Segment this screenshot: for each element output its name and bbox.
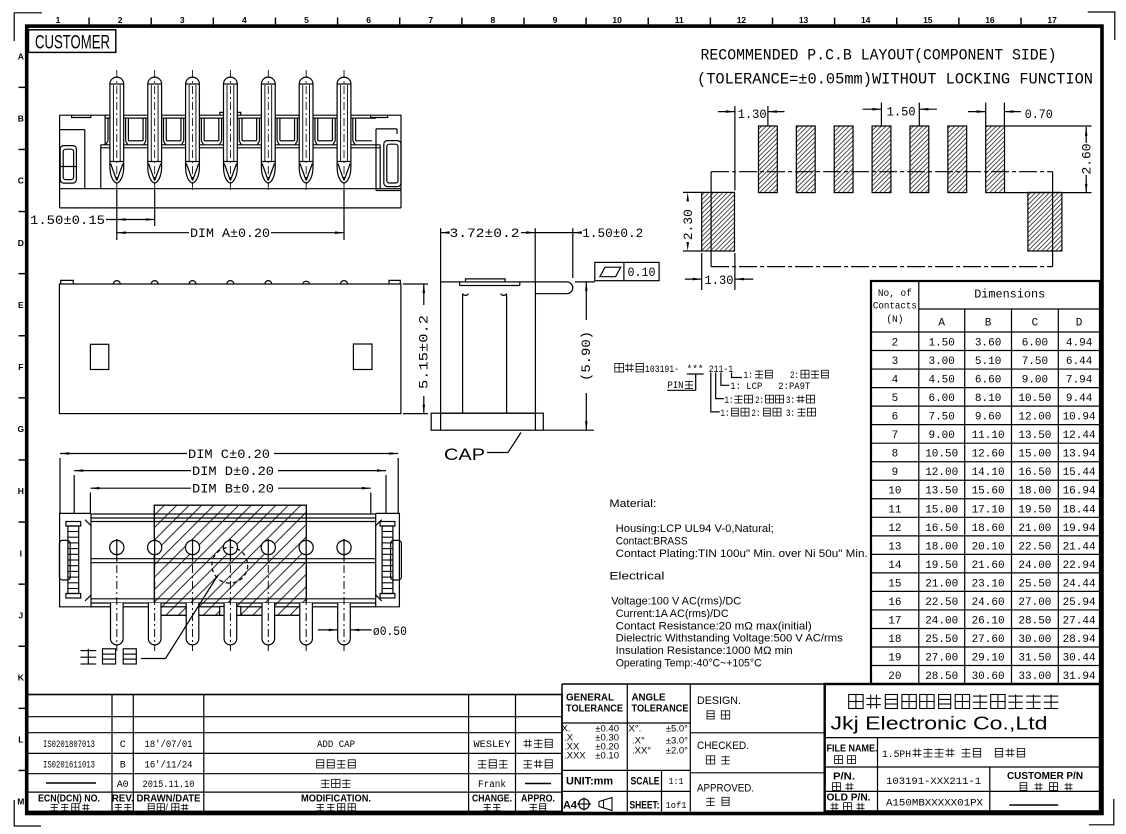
svg-text:2:: 2:	[752, 409, 761, 420]
svg-text:7.50: 7.50	[1022, 356, 1048, 368]
svg-text:25.50: 25.50	[925, 634, 958, 646]
svg-text:RECOMMENDED P.C.B LAYOUT(COMPO: RECOMMENDED P.C.B LAYOUT(COMPONENT SIDE)	[701, 47, 1057, 65]
svg-text:P/N.: P/N.	[833, 772, 855, 783]
svg-text:CUSTOMER P/N: CUSTOMER P/N	[1007, 771, 1083, 782]
svg-text:2:: 2:	[755, 396, 764, 407]
svg-text:IS0201807013: IS0201807013	[43, 740, 95, 751]
svg-text:3.00: 3.00	[928, 356, 954, 368]
svg-text:A4: A4	[563, 800, 578, 812]
svg-text:Contact Plating:TIN 100u" Min.: Contact Plating:TIN 100u" Min. over Ni 5…	[616, 548, 868, 560]
svg-text:3.60: 3.60	[975, 338, 1001, 350]
svg-text:ANGLE: ANGLE	[632, 693, 666, 704]
svg-text:Insulation Resistance:1000 MΩ: Insulation Resistance:1000 MΩ min	[616, 645, 793, 657]
svg-text:28.50: 28.50	[925, 671, 958, 683]
svg-text:13.50: 13.50	[1018, 430, 1051, 442]
svg-text:1: LCP 2:PA9T: 1: LCP 2:PA9T	[730, 382, 810, 393]
svg-text:103191-XXX211-1: 103191-XXX211-1	[886, 776, 981, 788]
svg-text:DIM A±0.20: DIM A±0.20	[190, 226, 270, 241]
svg-text:CUSTOMER: CUSTOMER	[35, 33, 110, 54]
svg-text:25.94: 25.94	[1063, 597, 1096, 609]
svg-text:7: 7	[892, 430, 899, 442]
svg-text:27.60: 27.60	[972, 634, 1005, 646]
svg-text:1.5PH: 1.5PH	[882, 749, 911, 761]
svg-text:I: I	[20, 548, 22, 558]
svg-text:1:: 1:	[721, 409, 730, 420]
svg-text:4: 4	[242, 15, 247, 25]
svg-text:±0.10: ±0.10	[595, 751, 619, 762]
svg-text:J: J	[18, 610, 23, 620]
svg-text:1.50: 1.50	[928, 338, 954, 350]
svg-text:30.00: 30.00	[1018, 634, 1051, 646]
svg-text:9.00: 9.00	[1022, 375, 1048, 387]
svg-text:24.44: 24.44	[1063, 578, 1096, 590]
svg-text:2.30: 2.30	[681, 209, 696, 240]
svg-text:3:: 3:	[786, 396, 795, 407]
svg-text:MODIFICATION.: MODIFICATION.	[301, 794, 371, 805]
svg-text:4.94: 4.94	[1066, 338, 1093, 350]
svg-text:4: 4	[892, 375, 899, 387]
svg-text:12.44: 12.44	[1063, 430, 1096, 442]
svg-text:APPRO.: APPRO.	[521, 794, 555, 805]
svg-text:Electrical: Electrical	[609, 571, 664, 583]
svg-text:18.00: 18.00	[1018, 486, 1051, 498]
svg-text:6.60: 6.60	[975, 375, 1001, 387]
svg-text:5.10: 5.10	[975, 356, 1001, 368]
svg-text:28.94: 28.94	[1063, 634, 1096, 646]
svg-text:FILE NAME.: FILE NAME.	[827, 744, 878, 755]
svg-text:12.60: 12.60	[972, 449, 1005, 461]
svg-text:Jkj Electronic Co.,Ltd: Jkj Electronic Co.,Ltd	[831, 714, 1048, 734]
svg-text:(N): (N)	[886, 314, 903, 326]
svg-text:ø0.50: ø0.50	[373, 624, 407, 639]
svg-text:G: G	[17, 424, 24, 434]
svg-text:DRAWN/DATE: DRAWN/DATE	[137, 794, 201, 805]
svg-text:12: 12	[888, 523, 901, 535]
svg-text:12: 12	[737, 15, 747, 25]
svg-text:M: M	[17, 797, 24, 807]
svg-text:19.94: 19.94	[1063, 523, 1096, 535]
svg-text:CAP: CAP	[444, 445, 485, 464]
svg-text:(TOLERANCE=±0.05mm)WITHOUT LOC: (TOLERANCE=±0.05mm)WITHOUT LOCKING FUNCT…	[697, 71, 1093, 89]
svg-text:Operating Temp:-40°C~+105°C: Operating Temp:-40°C~+105°C	[616, 658, 762, 670]
svg-text:12.00: 12.00	[925, 467, 958, 479]
svg-text:TOLERANCE: TOLERANCE	[632, 704, 689, 715]
svg-text:13.94: 13.94	[1063, 449, 1096, 461]
svg-text:9: 9	[553, 15, 558, 25]
svg-text:H: H	[18, 486, 24, 496]
svg-text:C: C	[18, 176, 24, 186]
svg-text:23.10: 23.10	[972, 578, 1005, 590]
svg-text:18.44: 18.44	[1063, 504, 1096, 516]
svg-text:ADD CAP: ADD CAP	[317, 740, 355, 751]
svg-text:5.15±0.2: 5.15±0.2	[417, 315, 432, 389]
svg-text:10: 10	[888, 486, 901, 498]
svg-text:28.50: 28.50	[1018, 615, 1051, 627]
svg-text:0.70: 0.70	[1025, 107, 1053, 122]
svg-text:2015.11.10: 2015.11.10	[143, 780, 195, 791]
svg-text:Contact Resistance:20 mΩ max(i: Contact Resistance:20 mΩ max(initial)	[616, 620, 812, 632]
svg-text:17.10: 17.10	[972, 504, 1005, 516]
svg-text:12.00: 12.00	[1018, 412, 1051, 424]
svg-text:15.44: 15.44	[1063, 467, 1096, 479]
svg-text:10.50: 10.50	[1018, 393, 1051, 405]
svg-text:18.60: 18.60	[972, 523, 1005, 535]
svg-text:1.30: 1.30	[705, 273, 734, 288]
svg-text:A: A	[18, 52, 24, 62]
svg-text:25.50: 25.50	[1018, 578, 1051, 590]
svg-text:D: D	[18, 238, 24, 248]
svg-text:CHANGE.: CHANGE.	[472, 794, 512, 805]
svg-text:6.00: 6.00	[928, 393, 954, 405]
svg-text:24.00: 24.00	[925, 615, 958, 627]
svg-text:Housing:LCP UL94 V-0,Natural;: Housing:LCP UL94 V-0,Natural;	[616, 523, 774, 535]
svg-text:14.10: 14.10	[972, 467, 1005, 479]
svg-text:Dielectric Withstanding Voltag: Dielectric Withstanding Voltage:500 V AC…	[616, 633, 844, 645]
svg-text:10: 10	[612, 15, 622, 25]
svg-text:SCALE: SCALE	[631, 776, 660, 788]
svg-text:18'/07/01: 18'/07/01	[145, 739, 193, 751]
svg-text:Contacts: Contacts	[873, 302, 917, 313]
svg-text:C: C	[120, 740, 126, 751]
svg-text:10.94: 10.94	[1063, 412, 1096, 424]
svg-text:F: F	[18, 362, 23, 372]
svg-text:A150MBXXXXX01PX: A150MBXXXXX01PX	[886, 798, 984, 810]
svg-text:9.44: 9.44	[1066, 393, 1093, 405]
svg-text:3: 3	[180, 15, 185, 25]
svg-text:5: 5	[892, 393, 899, 405]
svg-text:1:: 1:	[744, 371, 753, 382]
svg-text:13: 13	[888, 541, 901, 553]
svg-text:7.50: 7.50	[928, 412, 954, 424]
svg-text:15.00: 15.00	[925, 504, 958, 516]
svg-text:20.10: 20.10	[972, 541, 1005, 553]
svg-text:13.50: 13.50	[925, 486, 958, 498]
svg-text:1of1: 1of1	[666, 800, 687, 811]
svg-text:19.50: 19.50	[925, 560, 958, 572]
svg-text:15: 15	[888, 578, 901, 590]
svg-text:24.60: 24.60	[972, 597, 1005, 609]
svg-text:0.10: 0.10	[628, 265, 656, 280]
svg-text:30.60: 30.60	[972, 671, 1005, 683]
svg-text:2:: 2:	[790, 371, 799, 382]
svg-text:16: 16	[888, 597, 901, 609]
svg-text:±5.0°: ±5.0°	[666, 724, 688, 735]
svg-text:103191-: 103191-	[645, 365, 679, 376]
svg-text:IS0201611013: IS0201611013	[43, 761, 95, 772]
svg-text:Voltage:100 V AC(rms)/DC: Voltage:100 V AC(rms)/DC	[611, 595, 741, 607]
svg-text:22.50: 22.50	[925, 597, 958, 609]
svg-text:SHEET:: SHEET:	[630, 800, 660, 812]
svg-text:Dimensions: Dimensions	[974, 288, 1045, 302]
svg-text:REV.: REV.	[112, 794, 134, 805]
svg-text:DIM C±0.20: DIM C±0.20	[188, 447, 270, 462]
svg-text:17: 17	[888, 615, 901, 627]
svg-text:1: 1	[56, 15, 61, 25]
svg-text:DESIGN.: DESIGN.	[697, 695, 741, 707]
svg-text:20: 20	[888, 671, 901, 683]
svg-text:2: 2	[118, 15, 123, 25]
svg-text:18: 18	[888, 634, 901, 646]
svg-text:L: L	[18, 735, 23, 745]
svg-text:2: 2	[892, 338, 899, 350]
svg-text:7.94: 7.94	[1066, 375, 1093, 387]
svg-text:13: 13	[799, 15, 809, 25]
svg-text:19.50: 19.50	[1018, 504, 1051, 516]
svg-text:PIN: PIN	[668, 381, 684, 392]
svg-text:E: E	[18, 300, 24, 310]
svg-text:A: A	[938, 318, 945, 330]
svg-text:6.00: 6.00	[1022, 338, 1048, 350]
svg-text:16.94: 16.94	[1063, 486, 1096, 498]
svg-text:8: 8	[491, 15, 496, 25]
svg-text:B: B	[985, 318, 992, 330]
svg-text:21.00: 21.00	[1018, 523, 1051, 535]
svg-text:1.50: 1.50	[887, 104, 916, 119]
svg-text:22.50: 22.50	[1018, 541, 1051, 553]
svg-text:16'/11/24: 16'/11/24	[145, 760, 193, 772]
svg-text:19: 19	[888, 653, 901, 665]
svg-text:9.00: 9.00	[928, 430, 954, 442]
svg-text:30.44: 30.44	[1063, 653, 1096, 665]
svg-text:14: 14	[888, 560, 902, 572]
svg-text:7: 7	[428, 15, 433, 25]
svg-text:3.72±0.2: 3.72±0.2	[450, 226, 520, 241]
svg-text:1:1: 1:1	[669, 776, 684, 787]
svg-text:DIM D±0.20: DIM D±0.20	[192, 464, 274, 479]
svg-text:2.60: 2.60	[1080, 144, 1095, 175]
svg-text:OLD P/N.: OLD P/N.	[827, 793, 871, 804]
svg-text:9.60: 9.60	[975, 412, 1001, 424]
svg-text:A0: A0	[117, 780, 129, 791]
svg-text:11: 11	[888, 504, 902, 516]
svg-text:3: 3	[892, 356, 899, 368]
svg-text:UNIT:mm: UNIT:mm	[566, 776, 613, 788]
svg-text:33.00: 33.00	[1018, 671, 1051, 683]
svg-text:D: D	[1076, 318, 1083, 330]
svg-text:X°.: X°.	[629, 724, 642, 735]
svg-text:6: 6	[892, 412, 899, 424]
svg-text:3:: 3:	[786, 409, 795, 420]
svg-text:No, of: No, of	[878, 288, 912, 300]
svg-text:GENERAL: GENERAL	[566, 693, 614, 704]
svg-text:Frank: Frank	[478, 779, 506, 791]
svg-text:CHECKED.: CHECKED.	[697, 740, 749, 752]
svg-text:WESLEY: WESLEY	[474, 740, 511, 751]
svg-text:6: 6	[366, 15, 371, 25]
svg-text:DIM B±0.20: DIM B±0.20	[192, 482, 274, 497]
svg-text:C: C	[1032, 318, 1039, 330]
svg-text:1.50±0.2: 1.50±0.2	[582, 226, 643, 241]
svg-text:TOLERANCE: TOLERANCE	[566, 704, 623, 715]
svg-text:4.50: 4.50	[928, 375, 954, 387]
svg-text:B: B	[120, 761, 126, 772]
svg-text:1.50±0.15: 1.50±0.15	[30, 213, 105, 228]
svg-text:15.00: 15.00	[1018, 449, 1051, 461]
svg-text:21.00: 21.00	[925, 578, 958, 590]
svg-text:1:: 1:	[725, 396, 734, 407]
svg-text:27.00: 27.00	[1018, 597, 1051, 609]
svg-text:11: 11	[675, 15, 684, 25]
svg-text:9: 9	[892, 467, 899, 479]
svg-text:Contact:BRASS: Contact:BRASS	[616, 535, 688, 547]
svg-text:5: 5	[304, 15, 309, 25]
svg-text:1.30: 1.30	[738, 107, 767, 122]
svg-text:B: B	[18, 114, 24, 124]
svg-text:Material:: Material:	[609, 498, 656, 510]
svg-text:15: 15	[923, 15, 933, 25]
svg-text:8.10: 8.10	[975, 393, 1001, 405]
svg-text:APPROVED.: APPROVED.	[697, 783, 754, 795]
svg-text:15.60: 15.60	[972, 486, 1005, 498]
svg-text:±2.0°: ±2.0°	[666, 746, 688, 757]
svg-text:11.10: 11.10	[972, 430, 1005, 442]
svg-text:18.00: 18.00	[925, 541, 958, 553]
svg-text:29.10: 29.10	[972, 653, 1005, 665]
svg-text:.XX°: .XX°	[632, 746, 651, 757]
svg-text:31.94: 31.94	[1063, 671, 1096, 683]
svg-text:K: K	[18, 673, 25, 683]
svg-text:27.44: 27.44	[1063, 615, 1096, 627]
svg-text:10.50: 10.50	[925, 449, 958, 461]
svg-text:26.10: 26.10	[972, 615, 1005, 627]
svg-text:21.44: 21.44	[1063, 541, 1096, 553]
svg-text:31.50: 31.50	[1018, 653, 1051, 665]
svg-text:.XXX: .XXX	[564, 751, 586, 762]
svg-text:14: 14	[861, 15, 871, 25]
svg-text:16: 16	[985, 15, 995, 25]
svg-text:(5.90): (5.90)	[579, 331, 594, 381]
svg-text:16.50: 16.50	[925, 523, 958, 535]
svg-text:27.00: 27.00	[925, 653, 958, 665]
svg-text:21.60: 21.60	[972, 560, 1005, 572]
svg-text:22.94: 22.94	[1063, 560, 1096, 572]
svg-text:Current:1A AC(rms)/DC: Current:1A AC(rms)/DC	[616, 608, 729, 620]
svg-text:17: 17	[1047, 15, 1057, 25]
svg-text:24.00: 24.00	[1018, 560, 1051, 572]
svg-text:6.44: 6.44	[1066, 356, 1093, 368]
svg-text:8: 8	[892, 449, 899, 461]
svg-text:16.50: 16.50	[1018, 467, 1051, 479]
svg-text:ECN(DCN) NO.: ECN(DCN) NO.	[38, 794, 100, 805]
